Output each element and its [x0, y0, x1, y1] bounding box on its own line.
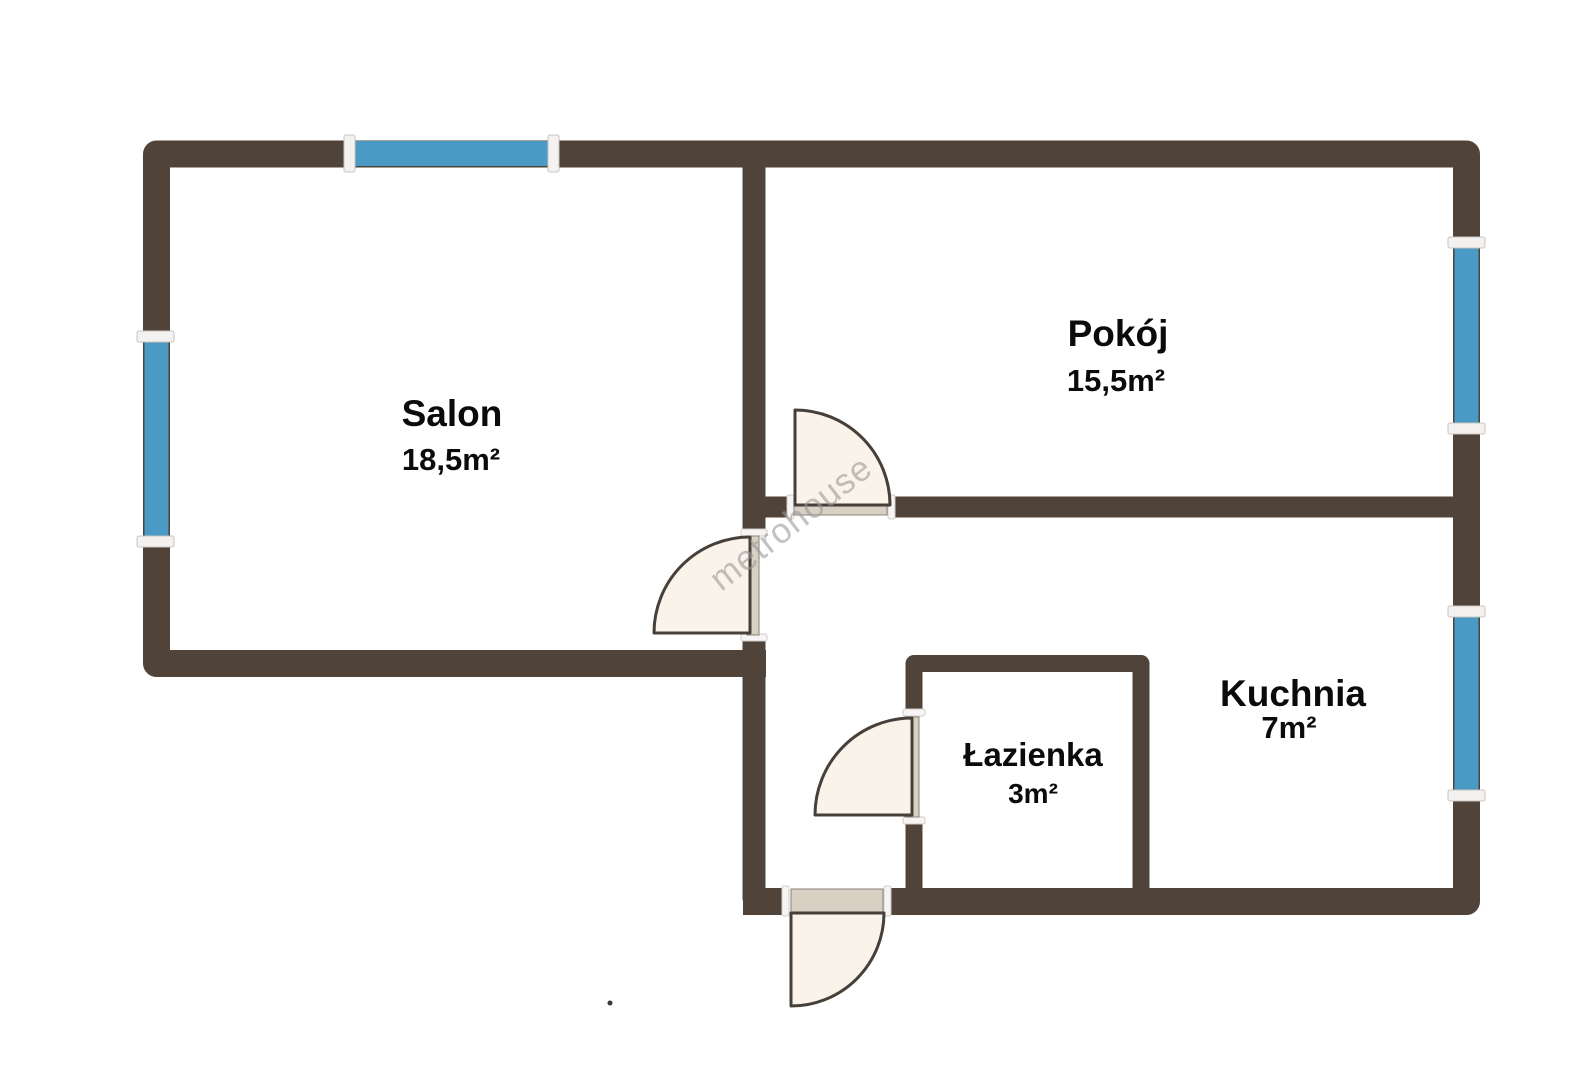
door-swing-arc [815, 718, 912, 815]
window-cap [137, 536, 174, 547]
room-label-lazienka: Łazienka 3m² [963, 736, 1103, 809]
room-name: Kuchnia [1220, 673, 1366, 714]
window-cap [344, 135, 355, 172]
room-label-salon: Salon 18,5m² [402, 393, 503, 477]
door-leaf [791, 889, 883, 914]
window-cap [1448, 790, 1485, 801]
window-cap [1448, 237, 1485, 248]
window-left [137, 331, 174, 547]
room-name: Salon [402, 393, 503, 434]
room-area: 3m² [1008, 778, 1058, 809]
room-name: Łazienka [963, 736, 1103, 773]
window-glass [145, 342, 169, 536]
window-cap [137, 331, 174, 342]
window-glass [355, 141, 548, 166]
room-label-kuchnia: Kuchnia 7m² [1220, 673, 1366, 745]
artifact-dot [608, 1001, 613, 1006]
door-entrance [791, 889, 884, 1006]
floorplan-canvas: metrohouse Salon 18,5m² Pokój 15,5m² Kuc… [0, 0, 1594, 1080]
window-cap [1448, 423, 1485, 434]
room-name: Pokój [1068, 313, 1169, 354]
door-jamb [903, 709, 925, 716]
bathroom-walls [914, 664, 1141, 891]
room-area: 7m² [1261, 710, 1316, 745]
door-jamb [884, 886, 891, 916]
window-glass [1455, 248, 1479, 423]
room-area: 18,5m² [402, 442, 500, 477]
door-swing-arc [791, 913, 884, 1006]
floorplan-svg: metrohouse Salon 18,5m² Pokój 15,5m² Kuc… [0, 0, 1594, 1080]
door-jamb [903, 817, 925, 824]
window-cap [548, 135, 559, 172]
door-bathroom [815, 717, 919, 817]
room-area: 15,5m² [1067, 363, 1165, 398]
watermark-text: metrohouse [702, 448, 880, 599]
window-cap [1448, 606, 1485, 617]
window-glass [1455, 617, 1479, 790]
room-label-pokoj: Pokój 15,5m² [1067, 313, 1168, 398]
door-jamb [782, 886, 789, 916]
